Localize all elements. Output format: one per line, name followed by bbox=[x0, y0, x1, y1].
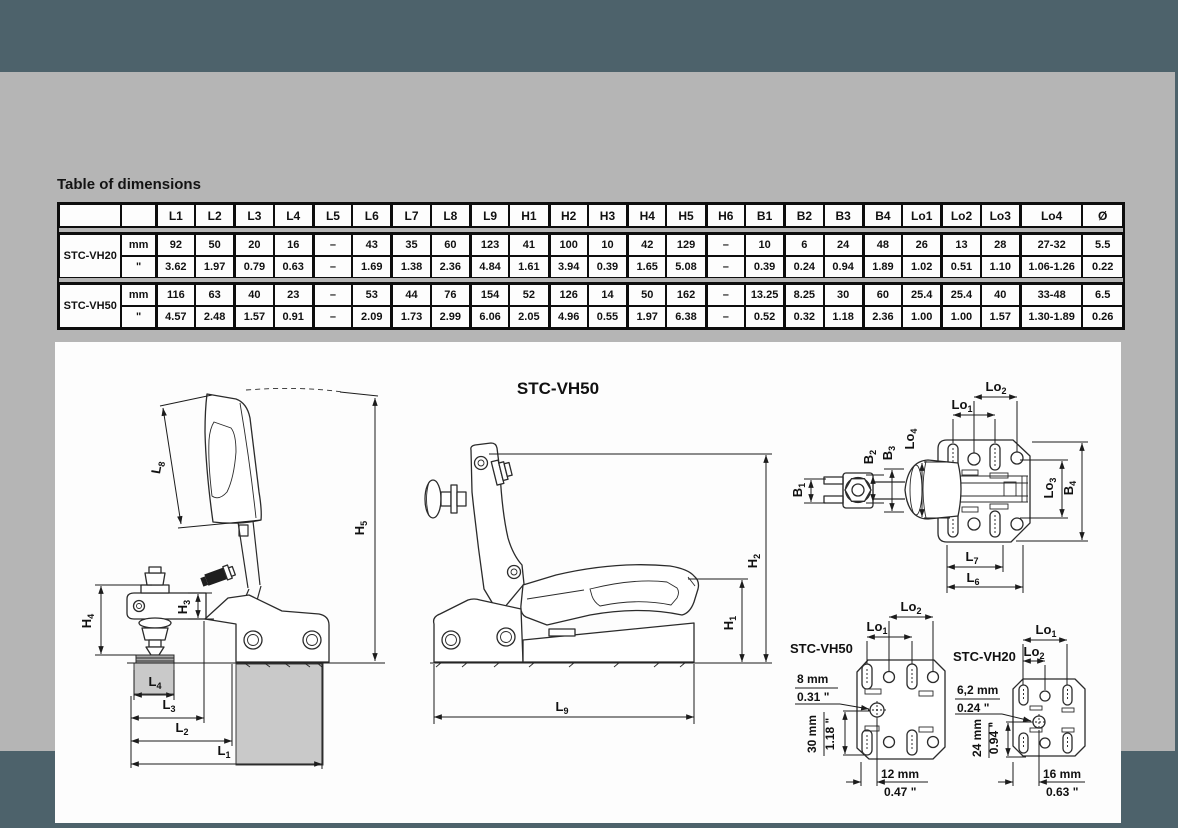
table-cell: 10 bbox=[745, 234, 784, 256]
table-cell: 1.38 bbox=[391, 256, 430, 278]
table-cell: 129 bbox=[666, 234, 705, 256]
table-cell: B3 bbox=[824, 204, 863, 228]
table-cell: 126 bbox=[549, 284, 588, 306]
dimensions-table: L1L2L3L4L5L6L7L8L9H1H2H3H4H5H6B1B2B3B4Lo… bbox=[57, 202, 1125, 330]
table-cell: 44 bbox=[391, 284, 430, 306]
vh20-v-in: 0.94 " bbox=[987, 722, 1001, 754]
table-cell: 1.61 bbox=[509, 256, 548, 278]
dim-label-lo4: Lo4 bbox=[902, 429, 919, 450]
table-cell: 60 bbox=[863, 284, 902, 306]
table-cell: 0.52 bbox=[745, 306, 784, 328]
table-cell: H6 bbox=[706, 204, 745, 228]
table-cell: L8 bbox=[431, 204, 470, 228]
dim-label-l9: L9 bbox=[556, 699, 569, 716]
table-cell: L4 bbox=[274, 204, 313, 228]
table-cell: H1 bbox=[509, 204, 548, 228]
table-cell: 1.10 bbox=[981, 256, 1020, 278]
dim-label-h5: H5 bbox=[352, 521, 369, 535]
table-cell: 0.26 bbox=[1082, 306, 1123, 328]
table-cell: 1.06-1.26 bbox=[1020, 256, 1082, 278]
technical-drawings: L8 H5 H4 H3 L4 L3 bbox=[55, 342, 1121, 823]
table-cell: 6.38 bbox=[666, 306, 705, 328]
table-cell: – bbox=[706, 256, 745, 278]
table-cell: 76 bbox=[431, 284, 470, 306]
dim-label-l7: L7 bbox=[966, 549, 979, 566]
table-cell: – bbox=[706, 306, 745, 328]
table-cell: 27-32 bbox=[1020, 234, 1082, 256]
drawing-top-view: Lo2 Lo1 Lo4 B3 B2 B1 bbox=[790, 379, 1088, 593]
table-cell: 10 bbox=[588, 234, 627, 256]
table-cell: Lo3 bbox=[981, 204, 1020, 228]
table-cell: 25.4 bbox=[902, 284, 941, 306]
table-cell: 0.32 bbox=[784, 306, 823, 328]
drawing-side-view-closed: L8 H5 H4 H3 L4 L3 bbox=[79, 388, 385, 769]
table-cell: H2 bbox=[549, 204, 588, 228]
dim-label-b1: B1 bbox=[790, 483, 807, 497]
table-cell: 63 bbox=[195, 284, 234, 306]
table-cell: 2.05 bbox=[509, 306, 548, 328]
dim-label-vh50-lo2: Lo2 bbox=[901, 599, 922, 616]
dim-label-l1: L1 bbox=[218, 743, 231, 760]
table-cell: 2.36 bbox=[863, 306, 902, 328]
table-cell: 4.96 bbox=[549, 306, 588, 328]
table-cell: 42 bbox=[627, 234, 666, 256]
table-cell: 13.25 bbox=[745, 284, 784, 306]
vh20-hole-mm: 6,2 mm bbox=[957, 683, 998, 697]
table-cell: 1.57 bbox=[981, 306, 1020, 328]
table-cell: 100 bbox=[549, 234, 588, 256]
table-cell: 6.06 bbox=[470, 306, 509, 328]
table-cell: H5 bbox=[666, 204, 705, 228]
table-cell: 0.94 bbox=[824, 256, 863, 278]
table-cell: 1.00 bbox=[941, 306, 980, 328]
dim-label-h1: H1 bbox=[721, 616, 738, 630]
table-cell: 123 bbox=[470, 234, 509, 256]
table-cell: STC-VH20 bbox=[59, 234, 121, 278]
table-cell: 13 bbox=[941, 234, 980, 256]
vh50-h-in: 0.47 " bbox=[884, 785, 916, 799]
table-cell: 1.73 bbox=[391, 306, 430, 328]
table-cell: 2.36 bbox=[431, 256, 470, 278]
table-cell: B1 bbox=[745, 204, 784, 228]
table-cell: 5.08 bbox=[666, 256, 705, 278]
dimensions-table-body: L1L2L3L4L5L6L7L8L9H1H2H3H4H5H6B1B2B3B4Lo… bbox=[59, 204, 1123, 328]
dim-label-b2: B2 bbox=[861, 450, 878, 464]
table-cell: L9 bbox=[470, 204, 509, 228]
table-cell bbox=[121, 204, 155, 228]
page-title: Table of dimensions bbox=[57, 176, 201, 193]
table-cell: 1.69 bbox=[352, 256, 391, 278]
dim-label-vh20-lo1: Lo1 bbox=[1036, 622, 1057, 639]
table-cell: – bbox=[706, 284, 745, 306]
table-cell: 1.97 bbox=[627, 306, 666, 328]
pattern-vh50-title: STC-VH50 bbox=[790, 641, 853, 656]
vh50-h-mm: 12 mm bbox=[881, 767, 919, 781]
table-cell: Lo4 bbox=[1020, 204, 1082, 228]
dim-label-l2: L2 bbox=[176, 720, 189, 737]
pattern-vh20-title: STC-VH20 bbox=[953, 649, 1016, 664]
table-cell: 154 bbox=[470, 284, 509, 306]
table-cell: 0.63 bbox=[274, 256, 313, 278]
vh20-v-mm: 24 mm bbox=[970, 719, 984, 757]
table-cell: 40 bbox=[981, 284, 1020, 306]
table-cell: H4 bbox=[627, 204, 666, 228]
table-cell: 25.4 bbox=[941, 284, 980, 306]
drawing-hole-pattern-vh20: STC-VH20 Lo1 Lo2 6,2 mm bbox=[953, 622, 1085, 799]
table-cell: 33-48 bbox=[1020, 284, 1082, 306]
table-cell: 1.57 bbox=[234, 306, 273, 328]
table-cell: 28 bbox=[981, 234, 1020, 256]
table-cell: L2 bbox=[195, 204, 234, 228]
table-cell: 3.94 bbox=[549, 256, 588, 278]
dim-label-lo3: Lo3 bbox=[1041, 478, 1058, 499]
drawings-panel: L8 H5 H4 H3 L4 L3 bbox=[55, 342, 1121, 823]
table-cell: 24 bbox=[824, 234, 863, 256]
table-cell: 1.89 bbox=[863, 256, 902, 278]
vh50-hole-mm: 8 mm bbox=[797, 672, 828, 686]
dim-label-b4: B4 bbox=[1061, 481, 1078, 495]
table-cell: 50 bbox=[195, 234, 234, 256]
table-cell: – bbox=[313, 256, 352, 278]
table-cell: – bbox=[313, 284, 352, 306]
table-cell: Lo1 bbox=[902, 204, 941, 228]
table-cell: – bbox=[313, 306, 352, 328]
table-cell: B4 bbox=[863, 204, 902, 228]
table-cell: 6 bbox=[784, 234, 823, 256]
table-cell: 1.00 bbox=[902, 306, 941, 328]
table-cell: 16 bbox=[274, 234, 313, 256]
table-cell: 6.5 bbox=[1082, 284, 1123, 306]
table-cell: 3.62 bbox=[156, 256, 195, 278]
drawing-hole-pattern-vh50: STC-VH50 Lo2 Lo1 bbox=[790, 599, 945, 799]
dim-label-lo1: Lo1 bbox=[952, 397, 973, 414]
table-cell: – bbox=[706, 234, 745, 256]
table-cell: 23 bbox=[274, 284, 313, 306]
dim-label-l6: L6 bbox=[967, 570, 980, 587]
table-cell: mm bbox=[121, 234, 155, 256]
table-cell: 0.91 bbox=[274, 306, 313, 328]
table-cell: 1.02 bbox=[902, 256, 941, 278]
table-cell: 8.25 bbox=[784, 284, 823, 306]
table-cell: 0.22 bbox=[1082, 256, 1123, 278]
table-cell: Ø bbox=[1082, 204, 1123, 228]
table-cell: 1.65 bbox=[627, 256, 666, 278]
table-cell: 2.09 bbox=[352, 306, 391, 328]
table-cell: 52 bbox=[509, 284, 548, 306]
table-cell: 60 bbox=[431, 234, 470, 256]
table-cell: 40 bbox=[234, 284, 273, 306]
table-cell: L1 bbox=[156, 204, 195, 228]
vh20-h-mm: 16 mm bbox=[1043, 767, 1081, 781]
table-cell: " bbox=[121, 256, 155, 278]
table-cell: – bbox=[313, 234, 352, 256]
drawing-side-view-open: STC-VH50 bbox=[425, 379, 772, 724]
table-cell: 1.18 bbox=[824, 306, 863, 328]
table-cell: 41 bbox=[509, 234, 548, 256]
table-cell: 20 bbox=[234, 234, 273, 256]
dim-label-l8: L8 bbox=[148, 460, 167, 476]
table-cell: Lo2 bbox=[941, 204, 980, 228]
dim-label-h2: H2 bbox=[745, 554, 762, 568]
table-cell: 50 bbox=[627, 284, 666, 306]
open-view-title: STC-VH50 bbox=[517, 379, 599, 398]
table-cell: L5 bbox=[313, 204, 352, 228]
table-cell: 1.97 bbox=[195, 256, 234, 278]
table-cell: mm bbox=[121, 284, 155, 306]
table-cell: " bbox=[121, 306, 155, 328]
table-cell: STC-VH50 bbox=[59, 284, 121, 328]
table-cell: 0.55 bbox=[588, 306, 627, 328]
vh20-hole-in: 0.24 " bbox=[957, 701, 989, 715]
table-cell: 0.39 bbox=[588, 256, 627, 278]
dim-label-h4: H4 bbox=[79, 614, 96, 628]
table-cell: 5.5 bbox=[1082, 234, 1123, 256]
table-cell: B2 bbox=[784, 204, 823, 228]
vh20-h-in: 0.63 " bbox=[1046, 785, 1078, 799]
table-cell: 26 bbox=[902, 234, 941, 256]
table-cell: 48 bbox=[863, 234, 902, 256]
vh50-hole-in: 0.31 " bbox=[797, 690, 829, 704]
dim-label-vh50-lo1: Lo1 bbox=[867, 619, 888, 636]
table-cell: H3 bbox=[588, 204, 627, 228]
table-cell: 1.30-1.89 bbox=[1020, 306, 1082, 328]
table-cell: 2.99 bbox=[431, 306, 470, 328]
table-cell: 0.24 bbox=[784, 256, 823, 278]
table-cell: 4.57 bbox=[156, 306, 195, 328]
table-cell: 43 bbox=[352, 234, 391, 256]
catalog-page: Table of dimensions L1L2L3L4L5L6L7L8L9H1… bbox=[0, 72, 1175, 751]
table-cell: 2.48 bbox=[195, 306, 234, 328]
dim-label-b3: B3 bbox=[880, 446, 897, 460]
table-wrapper: L1L2L3L4L5L6L7L8L9H1H2H3H4H5H6B1B2B3B4Lo… bbox=[57, 202, 1125, 330]
table-cell: L7 bbox=[391, 204, 430, 228]
table-cell: 30 bbox=[824, 284, 863, 306]
vh50-v-mm: 30 mm bbox=[805, 715, 819, 753]
table-cell bbox=[59, 204, 121, 228]
table-cell: 0.79 bbox=[234, 256, 273, 278]
table-cell: 92 bbox=[156, 234, 195, 256]
table-cell: 35 bbox=[391, 234, 430, 256]
table-cell: 14 bbox=[588, 284, 627, 306]
table-cell: 0.39 bbox=[745, 256, 784, 278]
table-cell: L6 bbox=[352, 204, 391, 228]
table-cell: 4.84 bbox=[470, 256, 509, 278]
dim-label-vh20-lo2: Lo2 bbox=[1024, 644, 1045, 661]
table-cell: 0.51 bbox=[941, 256, 980, 278]
table-cell: L3 bbox=[234, 204, 273, 228]
table-cell: 53 bbox=[352, 284, 391, 306]
dim-label-lo2: Lo2 bbox=[986, 379, 1007, 396]
vh50-v-in: 1.18 " bbox=[823, 718, 837, 750]
table-cell: 162 bbox=[666, 284, 705, 306]
table-cell: 116 bbox=[156, 284, 195, 306]
